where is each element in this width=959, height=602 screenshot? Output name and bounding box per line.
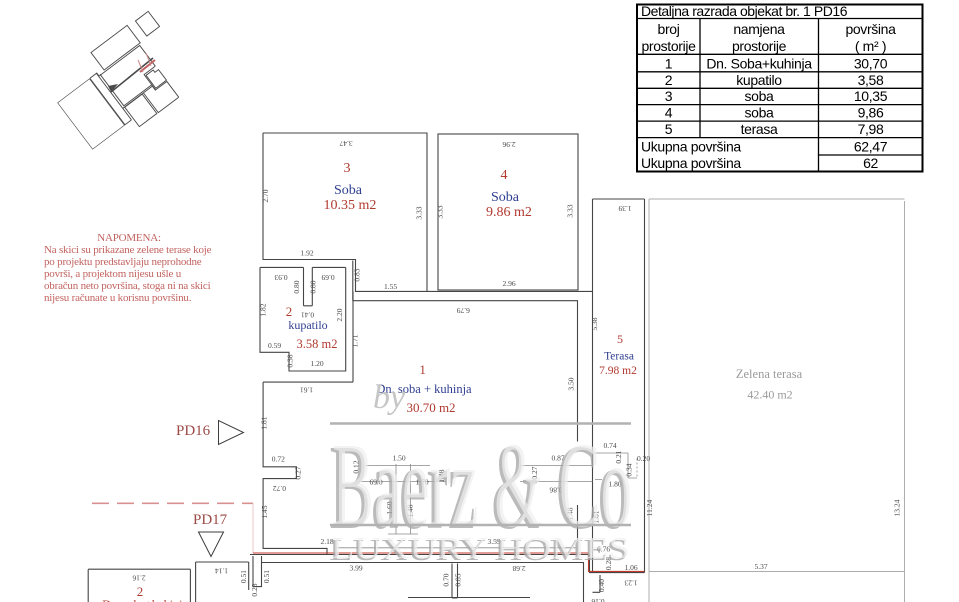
svg-text:10,35: 10,35 — [854, 88, 888, 104]
svg-text:62,47: 62,47 — [854, 138, 888, 154]
svg-text:kupatilo: kupatilo — [736, 72, 782, 88]
svg-text:soba: soba — [745, 88, 775, 104]
svg-text:terasa: terasa — [741, 121, 778, 137]
svg-text:4: 4 — [665, 105, 673, 121]
svg-text:namjena: namjena — [733, 21, 785, 37]
svg-text:62: 62 — [863, 155, 878, 171]
svg-text:30,70: 30,70 — [854, 55, 888, 71]
svg-text:3,58: 3,58 — [858, 72, 884, 88]
svg-text:5: 5 — [665, 121, 673, 137]
svg-text:1: 1 — [665, 55, 673, 71]
svg-text:prostorije: prostorije — [732, 38, 787, 54]
svg-text:Dn. Soba+kuhinja: Dn. Soba+kuhinja — [706, 55, 812, 71]
svg-text:( m² ): ( m² ) — [855, 38, 886, 54]
svg-text:Ukupna površina: Ukupna površina — [641, 155, 741, 171]
svg-text:Ukupna površina: Ukupna površina — [641, 138, 741, 154]
svg-text:Detaljna razrada objekat br. 1: Detaljna razrada objekat br. 1 PD16 — [641, 3, 848, 19]
svg-text:7,98: 7,98 — [858, 121, 884, 137]
svg-text:9,86: 9,86 — [858, 105, 884, 121]
svg-text:2: 2 — [665, 72, 673, 88]
svg-text:prostorije: prostorije — [641, 38, 696, 54]
svg-text:3: 3 — [665, 88, 673, 104]
svg-text:soba: soba — [745, 105, 775, 121]
svg-text:površina: površina — [845, 21, 896, 37]
svg-text:broj: broj — [658, 21, 680, 37]
